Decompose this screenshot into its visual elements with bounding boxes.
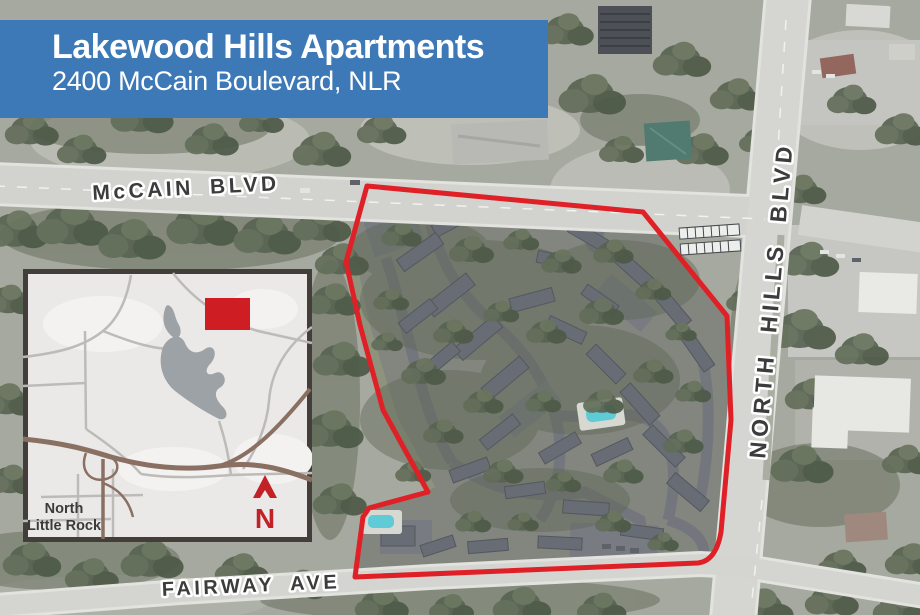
map-graphic: McCAIN BLVD NORTH HILLS BLVD FAIRWAY AVE (0, 0, 920, 615)
banner-title: Lakewood Hills Apartments (52, 28, 548, 67)
inset-map: N North Little Rock (23, 269, 312, 542)
city-label-line2: Little Rock (27, 518, 102, 534)
title-banner: Lakewood Hills Apartments 2400 McCain Bo… (0, 20, 548, 118)
north-arrow-letter: N (255, 503, 275, 534)
city-label-line1: North (45, 501, 84, 517)
location-marker (205, 298, 250, 330)
banner-subtitle: 2400 McCain Boulevard, NLR (52, 67, 548, 97)
